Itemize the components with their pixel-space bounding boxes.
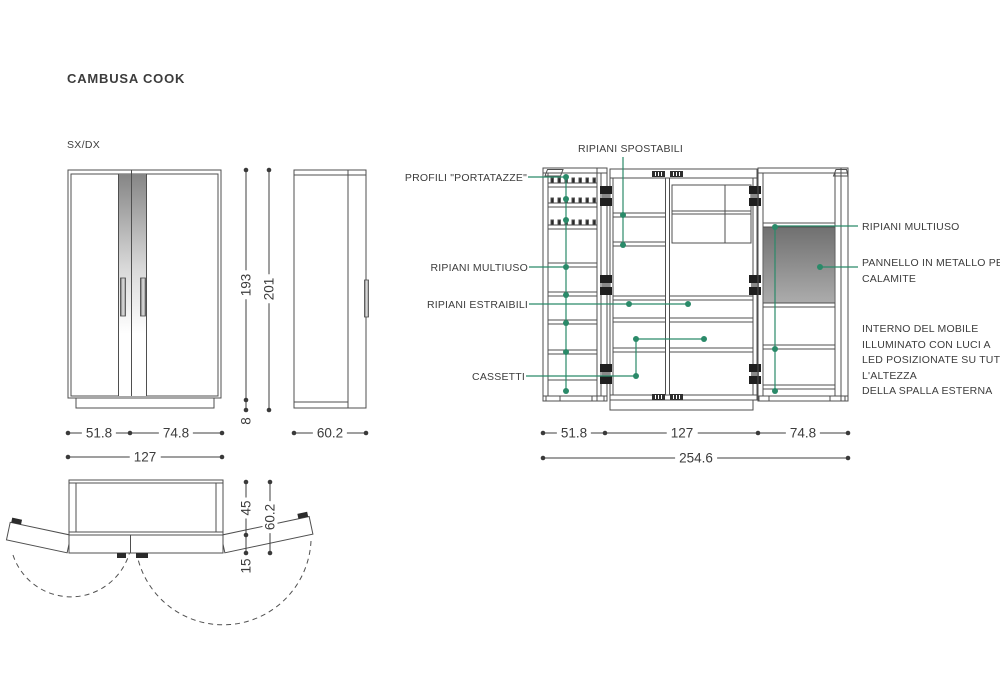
technical-drawing-page: CAMBUSA COOK SX/DX RIPIANI SPOSTABILI PR… [0, 0, 1000, 700]
label-pannello-line2: CALAMITE [862, 272, 1000, 288]
door-foot [759, 396, 769, 401]
label-interno-line4: L'ALTEZZA [862, 369, 1000, 385]
dim-open-total: 254.6 [675, 451, 717, 466]
label-interno-line2: ILLUMINATO CON LUCI A [862, 338, 1000, 354]
dim-open-right: 74.8 [786, 426, 820, 441]
open-right-door [758, 168, 848, 401]
label-interno-line5: DELLA SPALLA ESTERNA [862, 384, 1000, 400]
dim-front-plinth-height: 8 [239, 414, 254, 428]
left-door-swing-arc [13, 551, 130, 597]
page-title: CAMBUSA COOK [67, 71, 185, 86]
grid-compartment [672, 185, 751, 243]
label-interno-line1: INTERNO DEL MOBILE [862, 322, 1000, 338]
open-center-unit [610, 169, 757, 410]
center-hinge-mark [136, 553, 148, 558]
dim-front-left: 51.8 [82, 426, 116, 441]
center-left-shelves [613, 213, 666, 352]
label-cassetti: CASSETTI [472, 370, 525, 386]
dim-open-left: 51.8 [557, 426, 591, 441]
side-view [294, 170, 369, 408]
front-plinth [76, 398, 214, 408]
door-foot [592, 396, 604, 401]
metal-panel [763, 227, 835, 303]
dim-open-center: 127 [667, 426, 698, 441]
plan-cabinet-body [69, 480, 223, 553]
front-view [68, 170, 221, 408]
right-door-swing-arc [137, 541, 311, 625]
label-profili-portatazze: PROFILI "PORTATAZZE" [405, 171, 527, 187]
label-ripiani-multiuso-left: RIPIANI MULTIUSO [430, 261, 528, 277]
side-door-handle [365, 280, 369, 317]
dim-plan-carcass-depth: 45 [239, 497, 254, 518]
door-foot [830, 396, 845, 401]
front-door-handle-right [141, 278, 146, 316]
label-interno: INTERNO DEL MOBILE ILLUMINATO CON LUCI A… [862, 322, 1000, 400]
side-panel-outline [294, 170, 366, 408]
dim-front-carcass-height: 193 [239, 271, 254, 300]
label-interno-line3: LED POSIZIONATE SU TUTTA [862, 353, 1000, 369]
left-door-shelves [548, 183, 597, 380]
drawing-canvas [0, 0, 1000, 700]
dim-side-depth: 60.2 [313, 426, 347, 441]
center-hinge-mark [117, 553, 126, 558]
door-foot [546, 396, 560, 401]
dim-front-right: 74.8 [159, 426, 193, 441]
front-door-handle-left [121, 278, 126, 316]
dim-front-total-height: 201 [262, 275, 277, 304]
label-ripiani-multiuso-right: RIPIANI MULTIUSO [862, 220, 960, 236]
label-ripiani-estraibili: RIPIANI ESTRAIBILI [427, 298, 528, 314]
plan-left-door-open [6, 517, 71, 552]
dim-front-total: 127 [130, 450, 161, 465]
leader-cassetti [526, 339, 704, 376]
label-ripiani-spostabili: RIPIANI SPOSTABILI [578, 142, 683, 158]
label-pannello: PANNELLO IN METALLO PER CALAMITE [862, 256, 1000, 287]
dim-plan-total-depth: 60.2 [263, 501, 278, 533]
open-left-door [543, 168, 607, 401]
label-pannello-line1: PANNELLO IN METALLO PER [862, 256, 1000, 272]
center-plinth [610, 400, 753, 410]
dim-plan-door-depth: 15 [239, 555, 254, 576]
variant-label: SX/DX [67, 139, 100, 151]
